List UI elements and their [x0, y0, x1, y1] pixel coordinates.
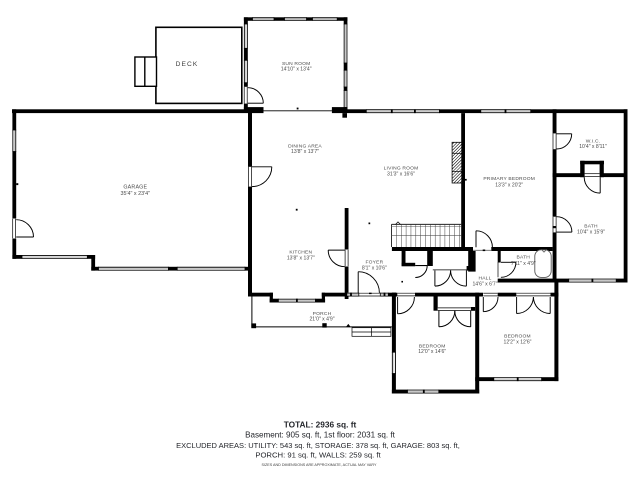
svg-text:10'4" x 8'11": 10'4" x 8'11" — [579, 144, 607, 150]
svg-text:14'10" x 13'4": 14'10" x 13'4" — [281, 67, 312, 73]
svg-text:31'3" x 16'6": 31'3" x 16'6" — [387, 172, 415, 178]
svg-text:21'0" x 4'9": 21'0" x 4'9" — [309, 316, 334, 322]
svg-text:PORCH: 91 sq. ft, WALLS: 259 s: PORCH: 91 sq. ft, WALLS: 259 sq. ft — [255, 451, 381, 460]
svg-text:13'8" x 13'7": 13'8" x 13'7" — [291, 149, 319, 155]
svg-text:14'6" x 6'7": 14'6" x 6'7" — [472, 282, 497, 288]
svg-text:13'3" x 20'2": 13'3" x 20'2" — [495, 182, 523, 188]
svg-text:13'8" x 13'7": 13'8" x 13'7" — [287, 256, 315, 262]
svg-text:8'1" x 10'6": 8'1" x 10'6" — [362, 266, 387, 272]
svg-text:PRIMARY BEDROOM: PRIMARY BEDROOM — [483, 176, 535, 182]
svg-text:DECK: DECK — [176, 61, 199, 68]
svg-text:EXCLUDED AREAS: UTILITY: 543 s: EXCLUDED AREAS: UTILITY: 543 sq. ft, STO… — [176, 441, 460, 450]
svg-text:TOTAL: 2936 sq. ft: TOTAL: 2936 sq. ft — [284, 420, 357, 430]
svg-text:HALL: HALL — [478, 275, 491, 281]
svg-text:7'11" x 4'9": 7'11" x 4'9" — [511, 261, 536, 267]
svg-text:SIZES AND DIMENSIONS ARE APPRO: SIZES AND DIMENSIONS ARE APPROXIMATE, AC… — [262, 463, 377, 467]
svg-text:BATH: BATH — [517, 255, 531, 261]
svg-text:GARAGE: GARAGE — [123, 185, 147, 191]
svg-text:10'4" x 15'9": 10'4" x 15'9" — [577, 229, 605, 235]
svg-text:Basement: 905 sq. ft, 1st floo: Basement: 905 sq. ft, 1st floor: 2031 sq… — [245, 431, 396, 440]
svg-text:35'4" x 23'4": 35'4" x 23'4" — [121, 191, 151, 197]
svg-text:12'0" x 14'6": 12'0" x 14'6" — [418, 349, 446, 355]
svg-text:12'2" x 12'6": 12'2" x 12'6" — [504, 339, 532, 345]
